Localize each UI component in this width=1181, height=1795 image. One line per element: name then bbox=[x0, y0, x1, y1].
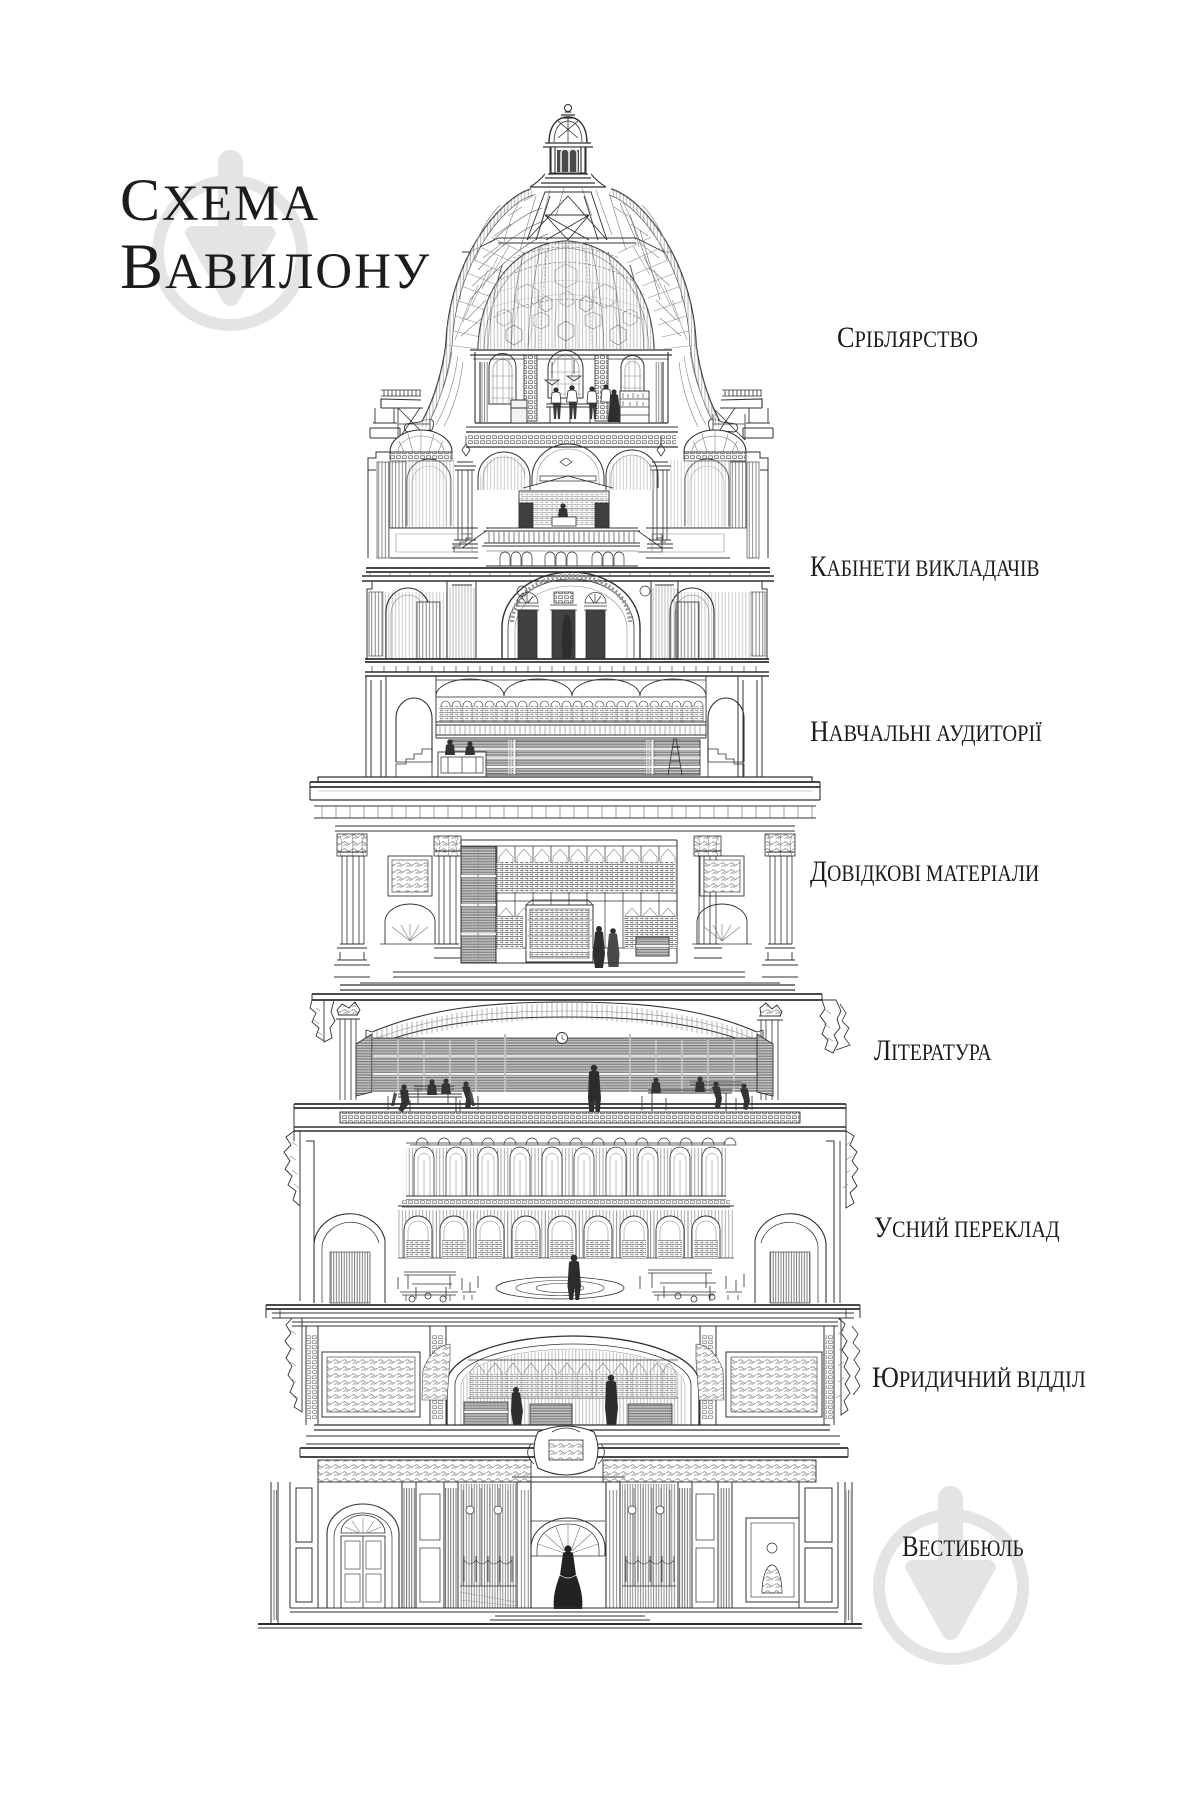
svg-text:УСНИЙ ПЕРЕКЛАД: УСНИЙ ПЕРЕКЛАД bbox=[874, 1211, 1060, 1244]
svg-text:СХЕМА: СХЕМА bbox=[120, 167, 320, 233]
svg-text:НАВЧАЛЬНІ АУДИТОРІЇ: НАВЧАЛЬНІ АУДИТОРІЇ bbox=[810, 715, 1042, 748]
svg-text:СРІБЛЯРСТВО: СРІБЛЯРСТВО bbox=[837, 321, 978, 354]
svg-text:ЮРИДИЧНИЙ ВІДДІЛ: ЮРИДИЧНИЙ ВІДДІЛ bbox=[872, 1361, 1086, 1394]
